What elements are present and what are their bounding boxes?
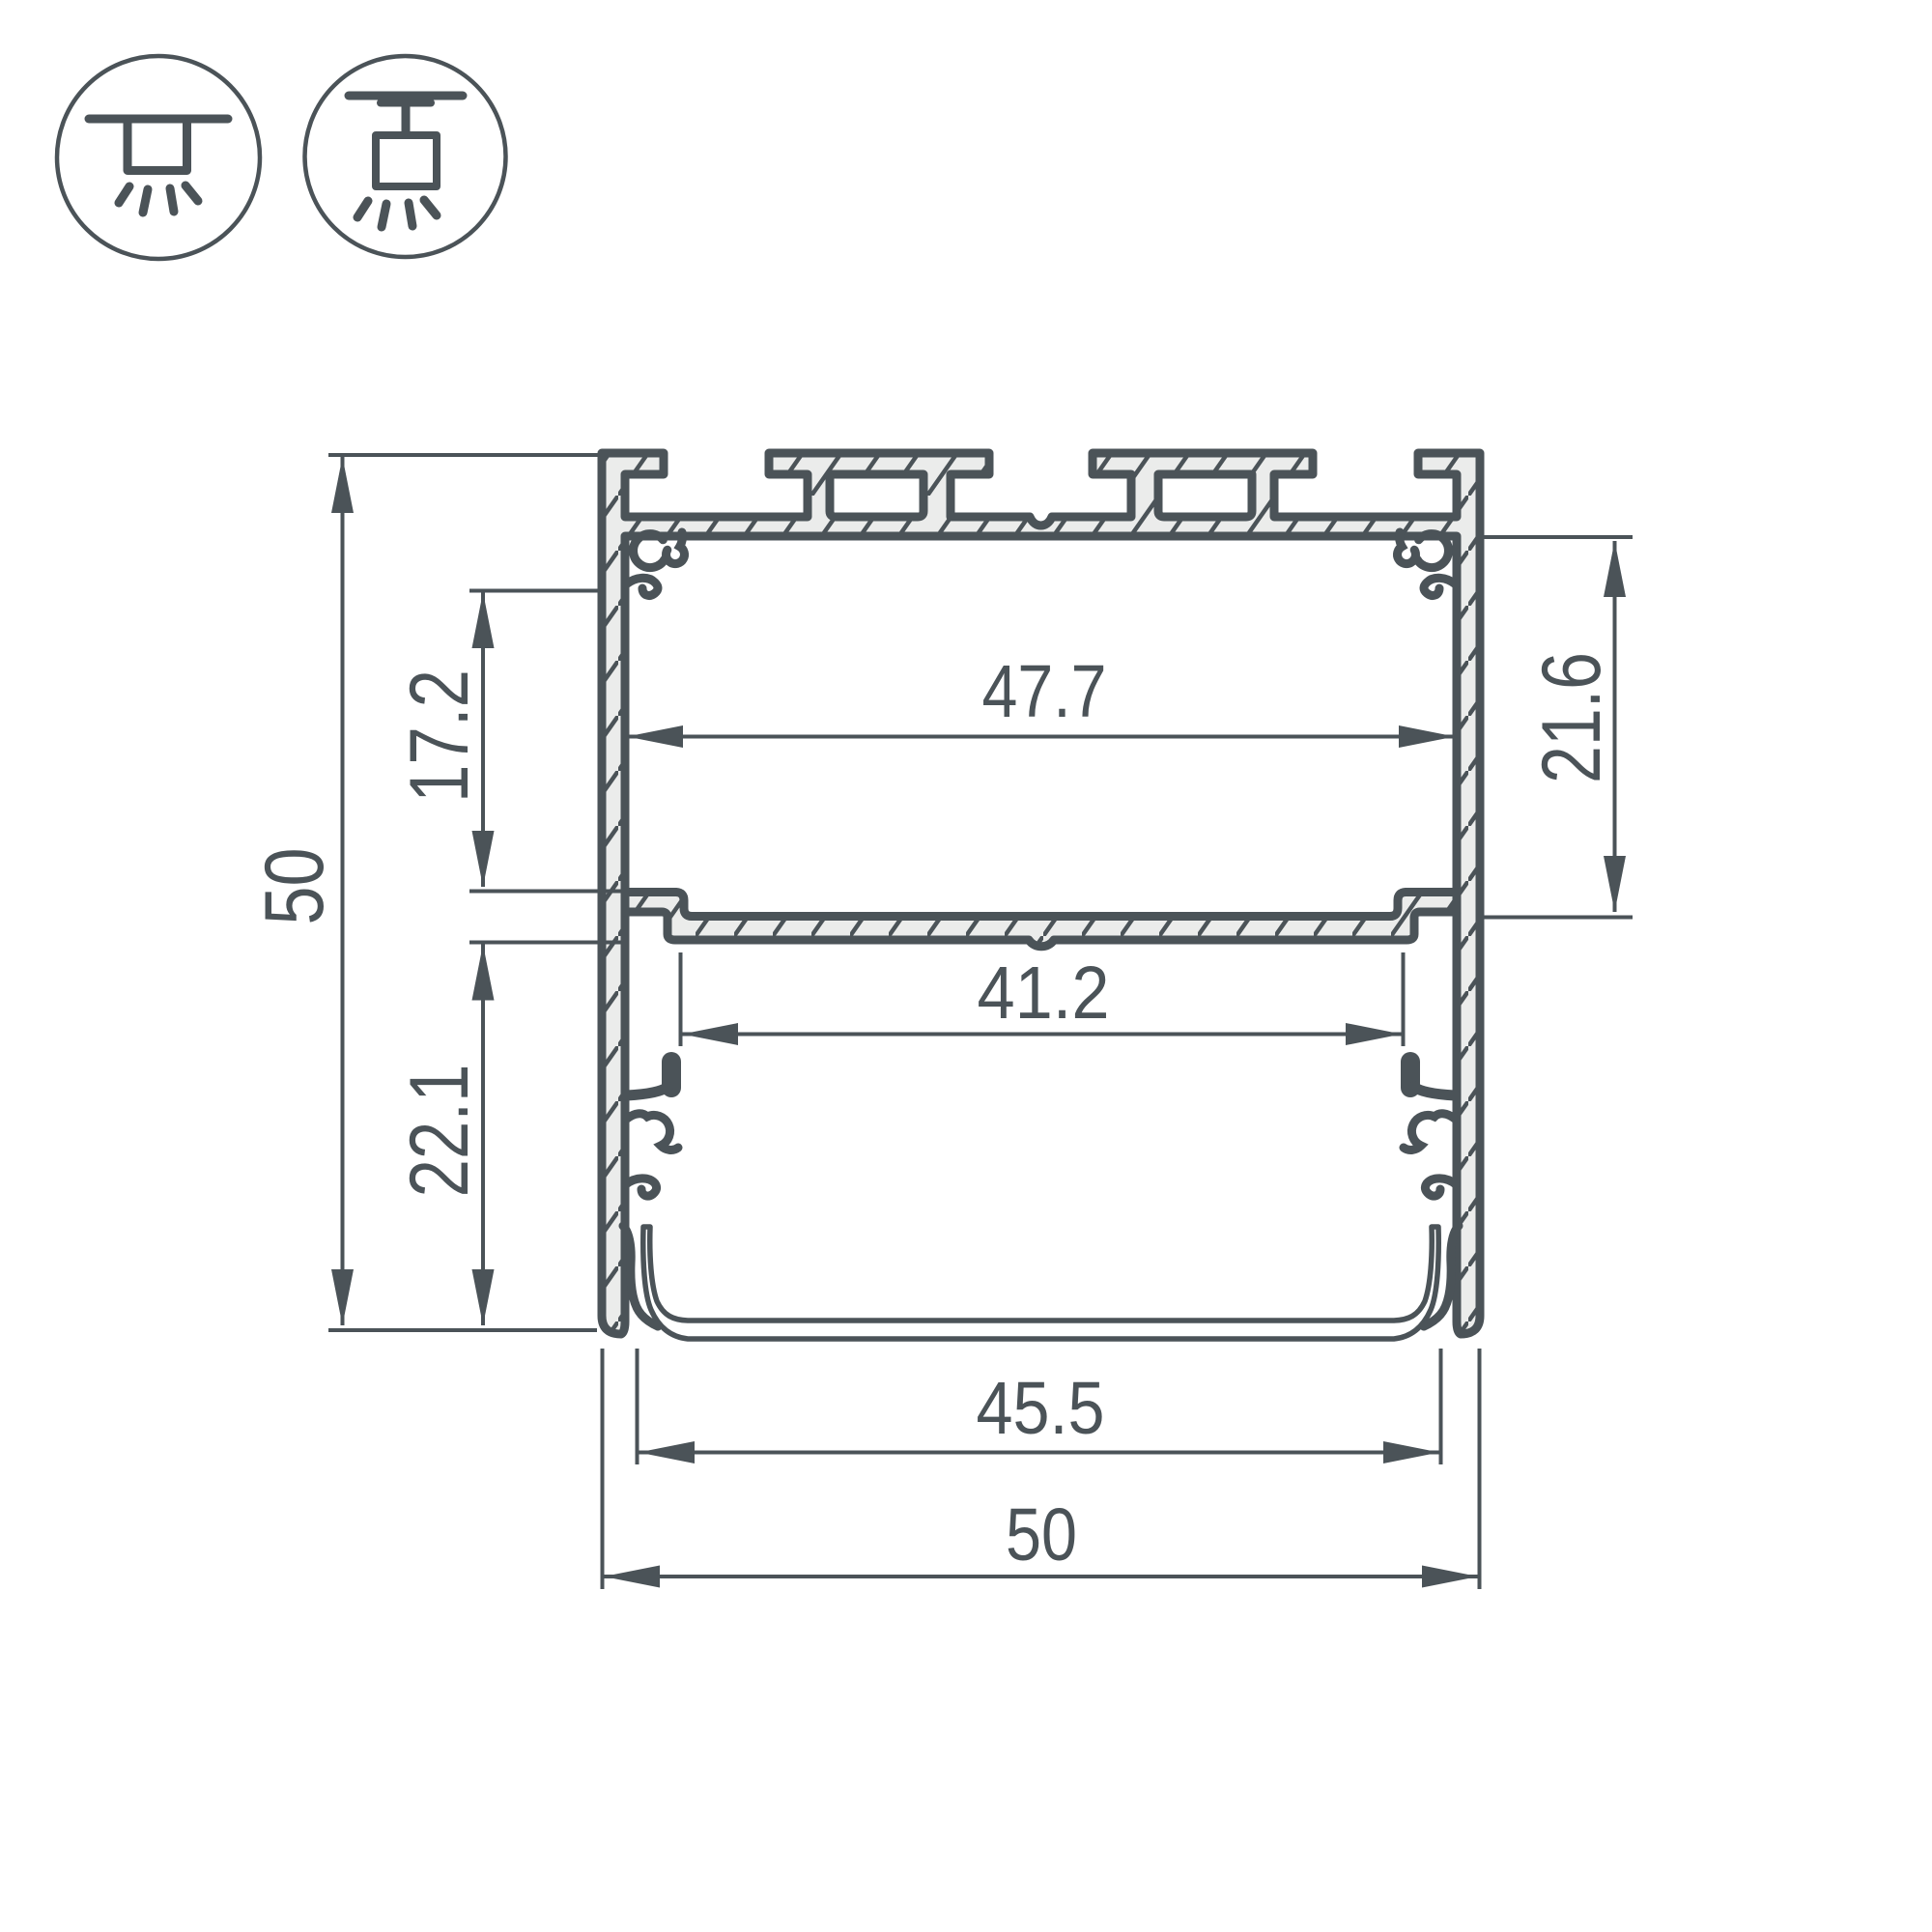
svg-text:22.1: 22.1	[393, 1065, 486, 1198]
svg-text:50: 50	[248, 848, 341, 925]
svg-text:45.5: 45.5	[977, 1367, 1105, 1450]
svg-text:21.6: 21.6	[1525, 652, 1618, 783]
svg-text:17.2: 17.2	[393, 669, 486, 803]
svg-text:41.2: 41.2	[978, 952, 1110, 1035]
svg-text:47.7: 47.7	[982, 650, 1107, 733]
svg-text:50: 50	[1006, 1493, 1077, 1577]
